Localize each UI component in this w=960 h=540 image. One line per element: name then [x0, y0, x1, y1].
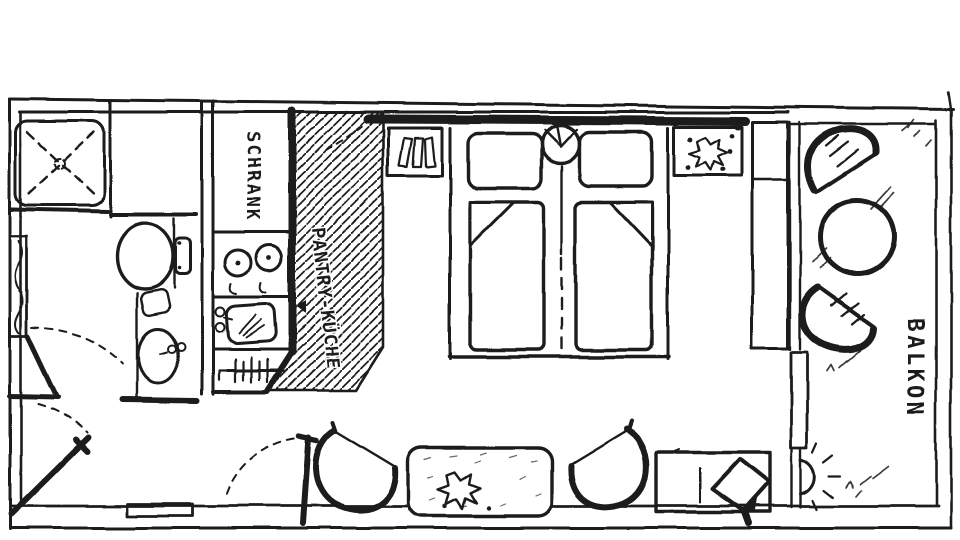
sitting-area	[316, 421, 770, 523]
balcony	[801, 120, 931, 509]
door-swing-arc	[227, 438, 308, 494]
twin-beds	[449, 124, 669, 359]
door-leaf	[303, 437, 309, 523]
door-swing-arc	[32, 327, 123, 363]
pillow	[580, 132, 652, 186]
balcony-floor-marks	[812, 120, 931, 496]
balcony-chair-bottom	[803, 288, 874, 349]
entrance	[11, 404, 193, 516]
floor-plan-canvas: SCHRANK PANTRY-KÜCHE BALKON	[0, 0, 960, 540]
tall-cabinet	[752, 122, 788, 348]
wardrobe-label: SCHRANK	[242, 132, 263, 222]
faucet-icon	[216, 324, 225, 333]
tub-chair-right	[571, 421, 646, 507]
door-swing-arc	[38, 404, 87, 433]
nightstand-right	[674, 123, 741, 176]
balcony-chair-top	[808, 129, 876, 192]
duvet-fold	[610, 202, 652, 246]
entrance-door-leaf	[11, 438, 88, 514]
nightstand-left	[388, 128, 442, 175]
bedside-lamp-icon	[542, 124, 580, 163]
kitchen-sink	[216, 303, 277, 344]
balcony-label: BALKON	[902, 318, 927, 418]
pillow	[468, 134, 542, 188]
washbasin	[123, 289, 197, 401]
toilet	[117, 218, 190, 289]
bathroom-door	[10, 327, 123, 397]
hotplates	[225, 245, 282, 294]
balcony-round-table	[820, 200, 894, 274]
wall-lamp-icon	[801, 443, 840, 509]
books-icon	[399, 137, 435, 166]
headboard-wall	[368, 119, 745, 121]
shower-cross-icon	[28, 132, 94, 194]
shower-cross-icon	[28, 132, 94, 194]
radiator	[10, 236, 27, 336]
floor-plan-drawing: SCHRANK PANTRY-KÜCHE BALKON	[0, 0, 960, 540]
balcony-door	[791, 352, 807, 507]
faucet-icon	[168, 345, 176, 353]
duvet-fold	[470, 202, 514, 246]
plant-icon	[686, 123, 740, 172]
shower-drain-icon	[55, 158, 65, 168]
bathroom	[10, 101, 213, 401]
room-door	[227, 436, 317, 523]
window	[790, 122, 800, 349]
desk	[656, 449, 770, 523]
tub-chair-left	[316, 422, 395, 510]
plant-table	[408, 448, 552, 516]
door-leaf	[28, 336, 57, 397]
faucet-icon	[216, 308, 225, 317]
